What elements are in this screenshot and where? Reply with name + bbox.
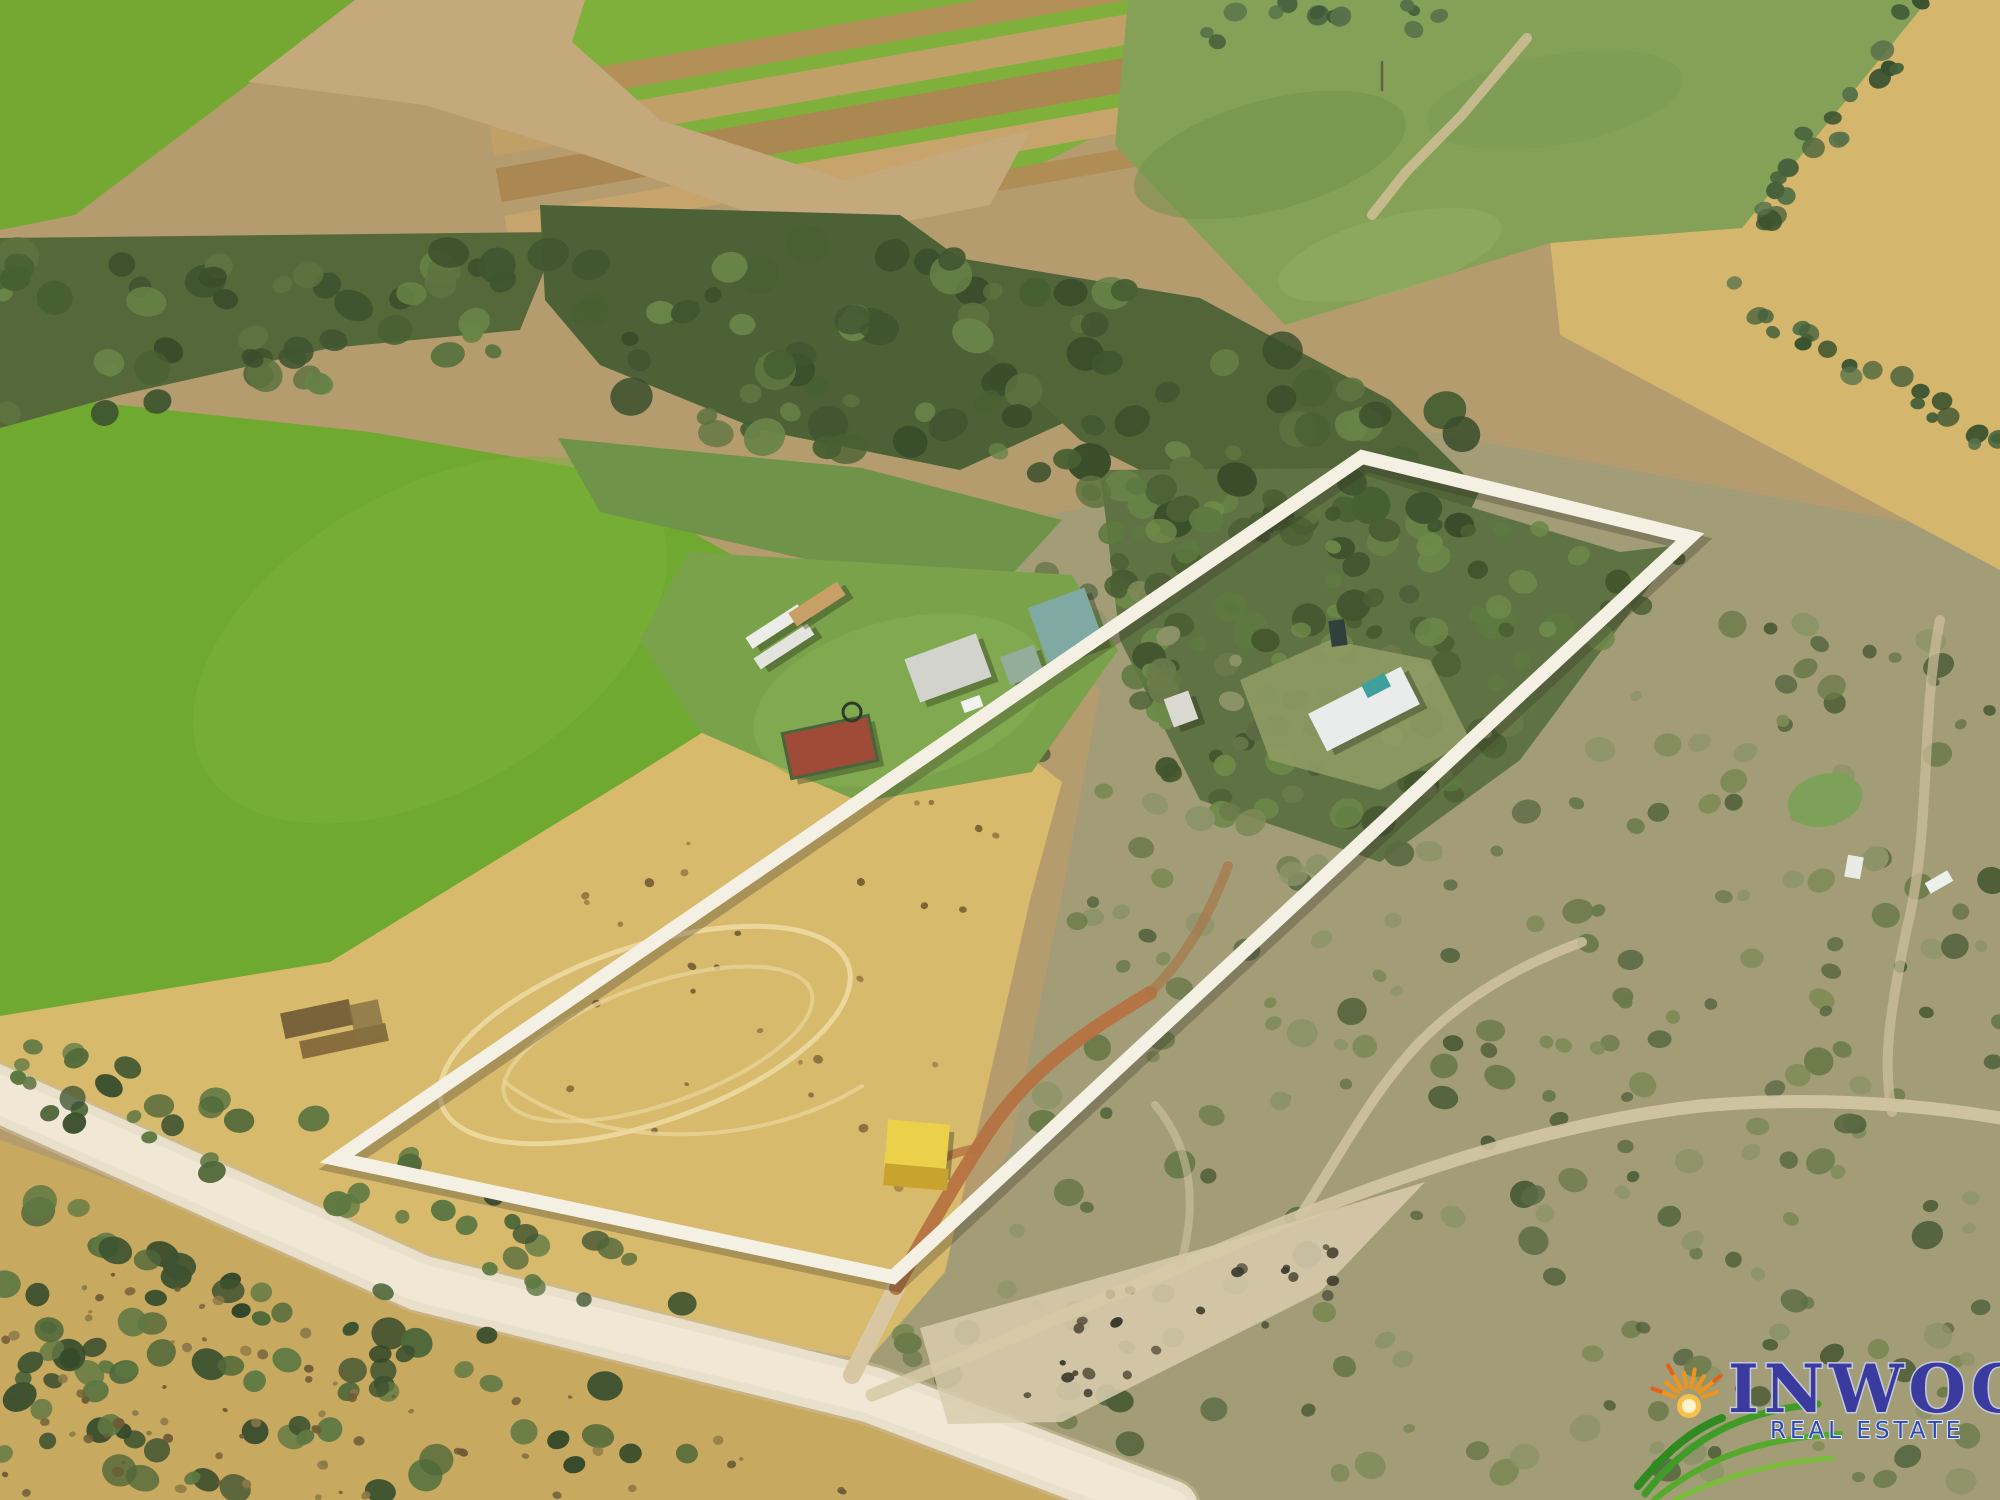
tree-bush	[339, 1358, 367, 1383]
tree-bush	[1824, 111, 1842, 124]
tree-bush	[914, 800, 920, 805]
watermark-tagline-text: REAL ESTATE	[1770, 1418, 1964, 1444]
tree-bush	[1279, 862, 1308, 886]
tree-bush	[1802, 138, 1825, 159]
tree-bush	[1852, 1472, 1865, 1482]
aerial-photo: INWOOD REAL ESTATE	[0, 0, 2000, 1500]
sun-core	[1682, 1399, 1696, 1413]
terrain-layers	[0, 0, 2000, 1500]
tree-bush	[1443, 879, 1457, 890]
aerial-listing-photo: INWOOD REAL ESTATE	[0, 0, 2000, 1500]
tree-bush	[894, 1332, 922, 1353]
tree-bush	[1648, 1030, 1672, 1048]
watermark-brand-text: INWOOD	[1728, 1350, 2000, 1428]
tree-bush	[1094, 784, 1113, 799]
tree-bush	[1155, 757, 1178, 778]
